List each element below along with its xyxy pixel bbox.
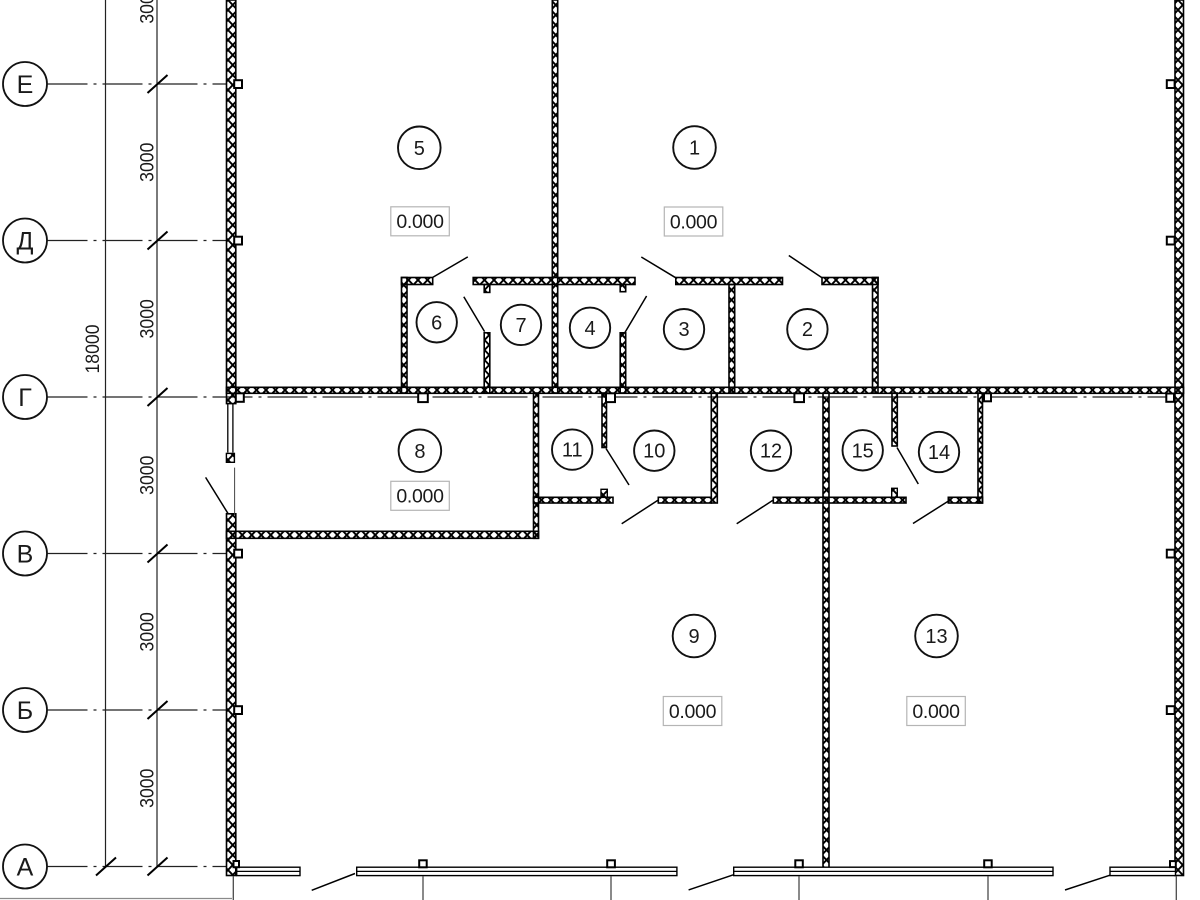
svg-text:10: 10 [643,441,665,463]
svg-text:Б: Б [17,697,33,725]
svg-text:15: 15 [852,440,874,462]
svg-text:1: 1 [689,138,700,160]
svg-text:Г: Г [18,384,32,412]
svg-text:5: 5 [414,138,425,160]
svg-text:3000: 3000 [136,612,158,651]
svg-text:0.000: 0.000 [912,701,960,723]
svg-text:Д: Д [17,228,34,256]
svg-text:0.000: 0.000 [669,701,717,723]
svg-text:3000: 3000 [136,769,158,808]
svg-text:3: 3 [678,319,689,341]
svg-text:3000: 3000 [136,0,158,24]
svg-text:6: 6 [431,312,442,334]
svg-text:11: 11 [562,440,583,462]
svg-text:3000: 3000 [136,143,158,182]
svg-text:7: 7 [515,315,526,337]
svg-text:Е: Е [17,71,34,99]
svg-text:18000: 18000 [81,324,103,373]
svg-text:2: 2 [802,319,813,341]
svg-text:0.000: 0.000 [396,486,444,508]
svg-text:0.000: 0.000 [670,211,718,233]
svg-text:0.000: 0.000 [396,211,444,233]
svg-text:4: 4 [584,318,595,340]
svg-text:3000: 3000 [136,299,158,338]
svg-text:А: А [17,854,34,882]
svg-text:8: 8 [414,441,425,463]
svg-text:12: 12 [760,441,782,463]
svg-text:14: 14 [928,442,950,464]
svg-text:3000: 3000 [136,456,158,495]
svg-text:В: В [17,541,34,569]
svg-text:13: 13 [925,626,947,648]
svg-text:9: 9 [688,626,699,648]
